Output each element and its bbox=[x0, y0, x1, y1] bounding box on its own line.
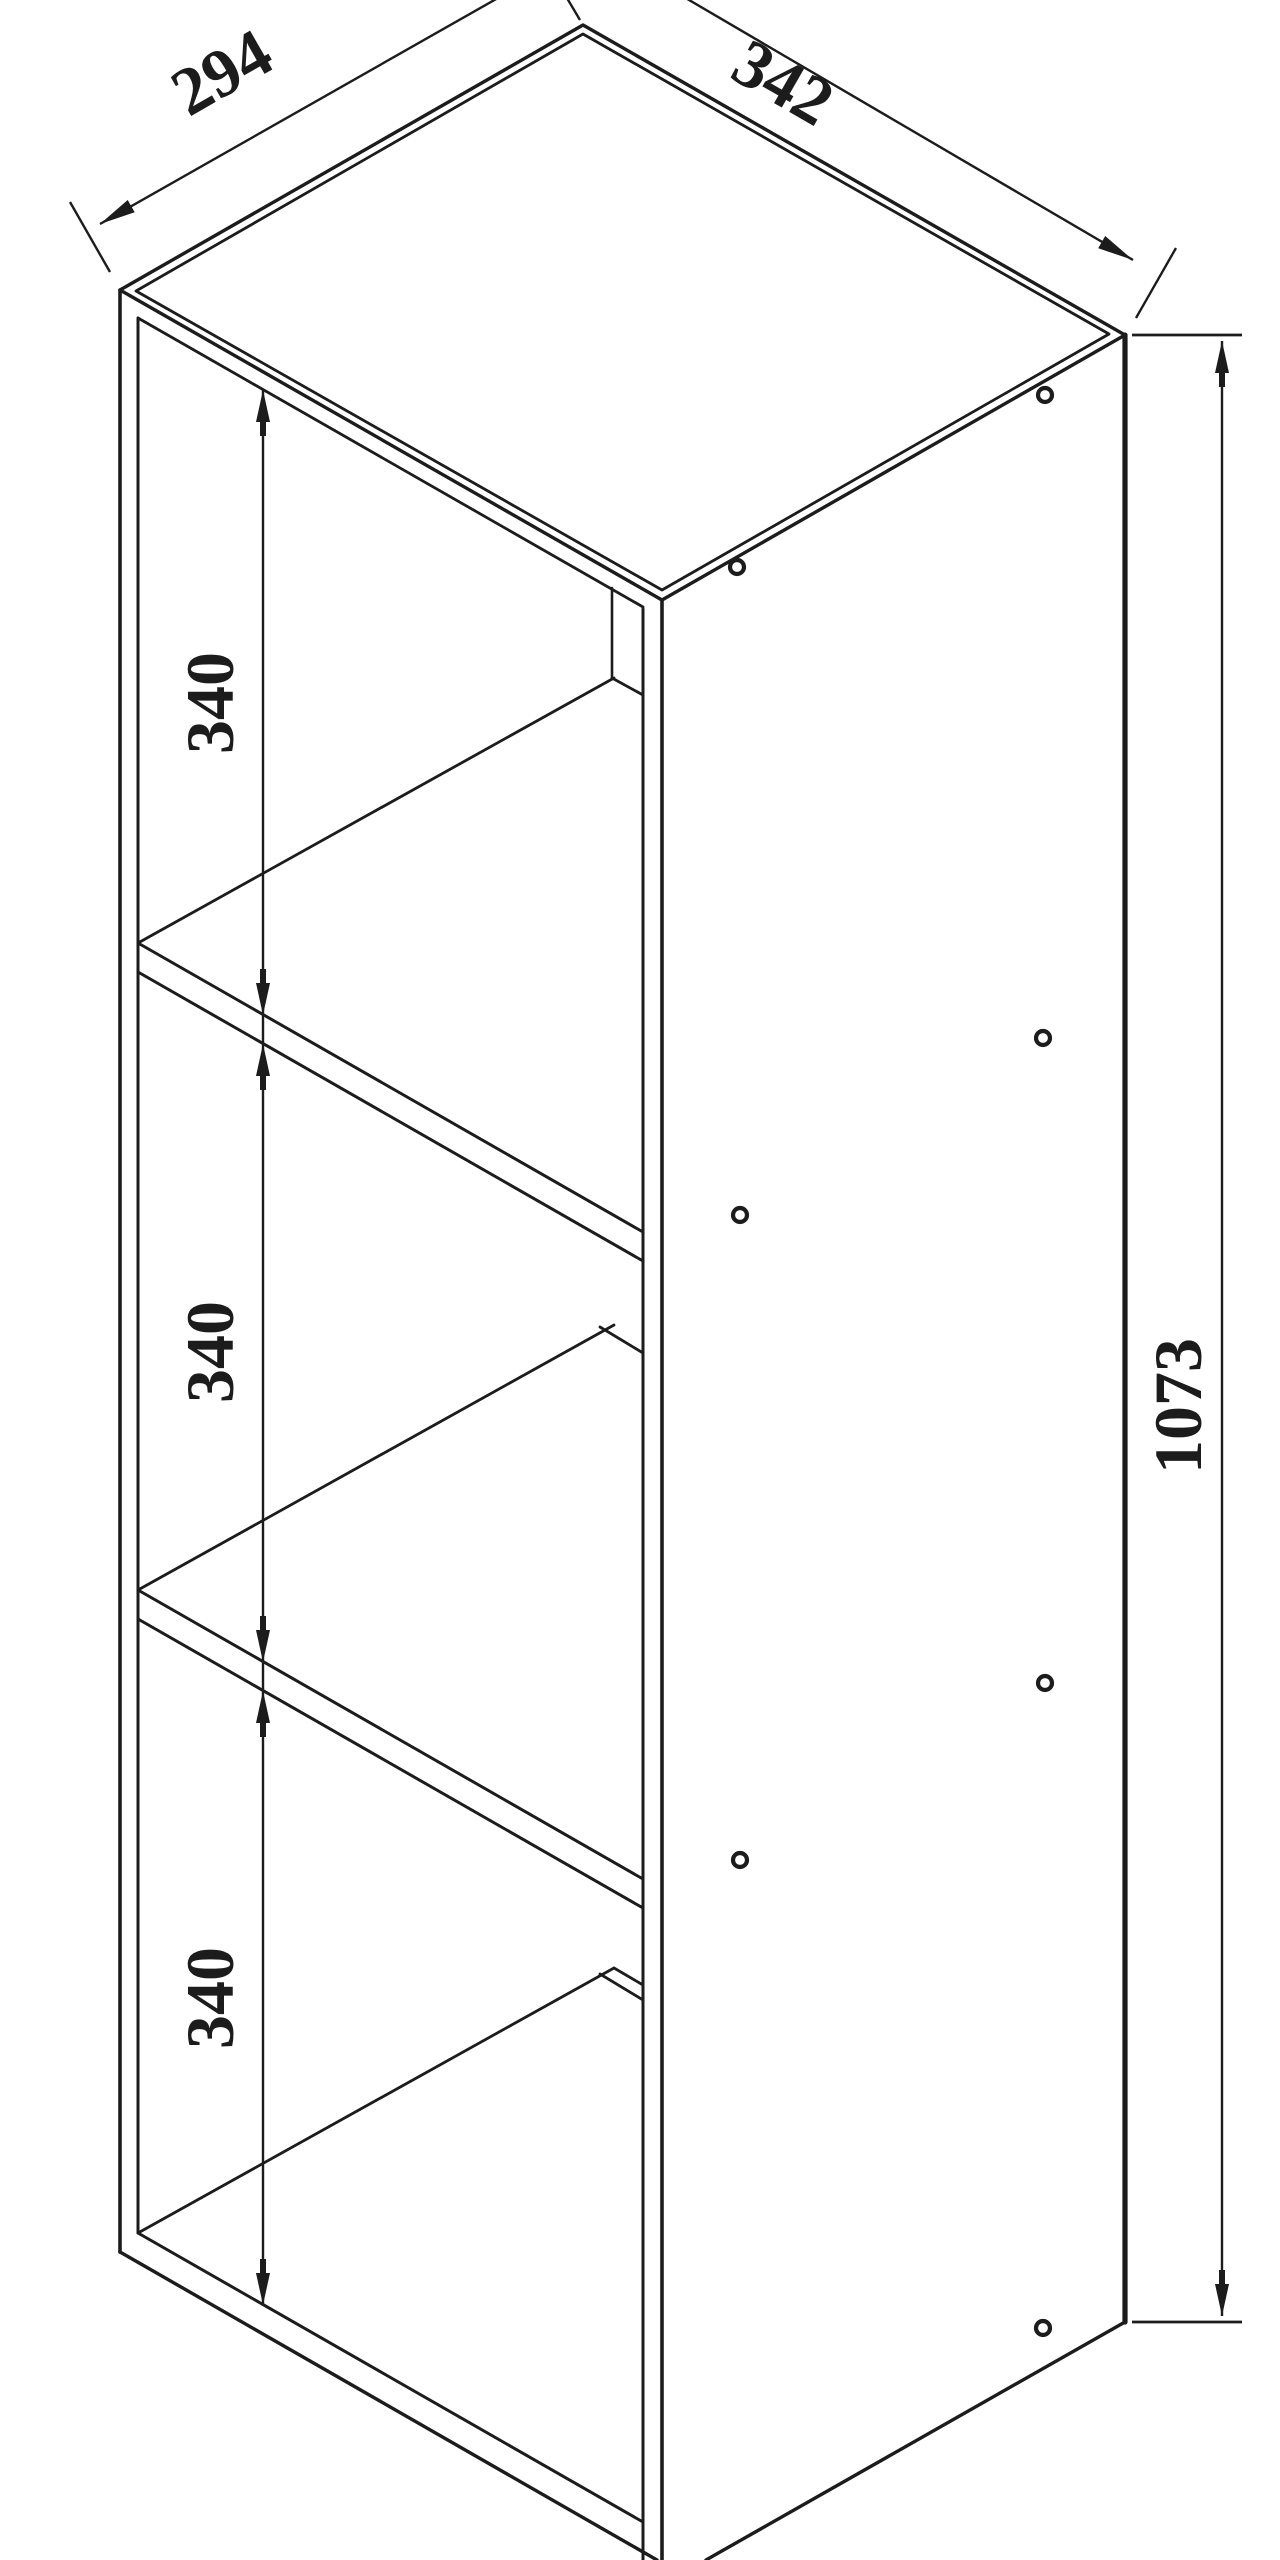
dim-label-340-top: 340 bbox=[172, 652, 248, 754]
shelf1-front-top-edge bbox=[138, 943, 643, 1232]
cabinet-body bbox=[120, 25, 1125, 2560]
dimension-294: 294 bbox=[70, 0, 580, 272]
technical-drawing-page: 294 342 340 340 340 1073 bbox=[0, 0, 1280, 2560]
dim-extension-294-right bbox=[561, 0, 580, 20]
screw-holes bbox=[730, 388, 1052, 2335]
screw-hole bbox=[730, 560, 744, 574]
shelf1-right-end-detail bbox=[600, 1327, 643, 1353]
screw-hole bbox=[733, 1853, 747, 1867]
screw-hole bbox=[1038, 388, 1052, 402]
arrowhead bbox=[100, 200, 135, 224]
right-panel-bottom-edge bbox=[706, 2322, 1125, 2560]
arrowhead-up bbox=[1215, 341, 1229, 387]
arrowhead-down bbox=[256, 2259, 270, 2305]
arrowhead-down bbox=[256, 969, 270, 1015]
dim-extension-294-left bbox=[70, 202, 110, 272]
dim-line-342 bbox=[672, 0, 1133, 260]
shelf1-back-edge-stub bbox=[612, 678, 643, 695]
dimension-1073: 1073 bbox=[1132, 335, 1242, 2322]
arrowhead-down bbox=[1215, 2270, 1229, 2316]
shelf2-front-top-edge bbox=[138, 1590, 643, 1879]
dim-label-1073: 1073 bbox=[1140, 1338, 1216, 1474]
dim-label-340-middle: 340 bbox=[172, 1301, 248, 1403]
dimension-342: 342 bbox=[672, 0, 1176, 318]
dimension-340-group: 340 340 340 bbox=[172, 390, 270, 2305]
screw-hole bbox=[1036, 1031, 1050, 1045]
shelf2-front-bottom-edge bbox=[138, 1619, 643, 1908]
screw-hole bbox=[1036, 2321, 1050, 2335]
arrowhead-up bbox=[256, 390, 270, 436]
dim-label-340-bottom: 340 bbox=[172, 1947, 248, 2049]
arrowhead-up bbox=[256, 1691, 270, 1737]
dim-line-294 bbox=[100, 0, 512, 224]
bottom-panel-front-bottom-edge bbox=[120, 2252, 657, 2560]
top-panel-underside-edge bbox=[138, 318, 643, 607]
shelf1-front-bottom-edge bbox=[138, 972, 643, 1261]
top-panel-edge-inset bbox=[136, 34, 1109, 590]
top-panel-outline bbox=[120, 25, 1125, 600]
shelf2-right-end-detail bbox=[600, 1974, 643, 2000]
dim-label-294: 294 bbox=[158, 14, 284, 131]
dim-extension-342-right bbox=[1136, 248, 1176, 318]
arrowhead-up bbox=[256, 1044, 270, 1090]
screw-hole bbox=[733, 1208, 747, 1222]
screw-hole bbox=[1038, 1676, 1052, 1690]
bottom-panel-back-edge-stub bbox=[614, 1968, 643, 1985]
bottom-panel-front-top-edge bbox=[138, 2233, 643, 2522]
shelf-unit-drawing: 294 342 340 340 340 1073 bbox=[0, 0, 1280, 2560]
arrowhead bbox=[1098, 236, 1133, 260]
arrowhead-down bbox=[256, 1616, 270, 1662]
